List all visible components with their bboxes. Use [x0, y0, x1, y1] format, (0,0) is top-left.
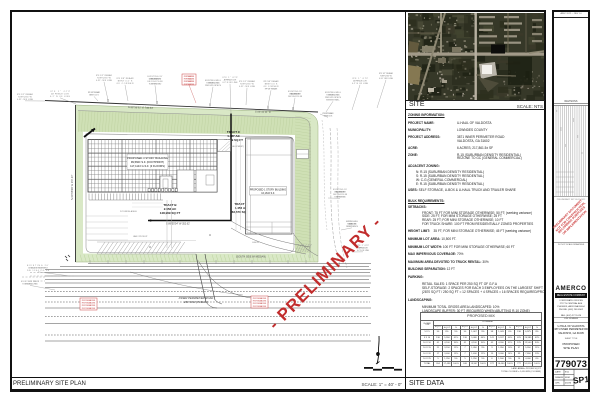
svg-text:TO BE REMOVED: TO BE REMOVED [149, 83, 162, 85]
svg-text:99,560± S.F. (FOOTPRINT): 99,560± S.F. (FOOTPRINT) [131, 160, 164, 164]
svg-text:0.2' N OF LINE: 0.2' N OF LINE [223, 82, 239, 84]
svg-text:U-BOX: U-BOX [252, 242, 259, 244]
svg-text:PROPOSED 40' ACCESS: PROPOSED 40' ACCESS [184, 78, 195, 81]
svg-text:0.31' OFF LINE: 0.31' OFF LINE [379, 78, 394, 80]
svg-text:0.2' N OF LINE: 0.2' N OF LINE [50, 96, 71, 98]
svg-text:BENT 0.5' S: BENT 0.5' S [89, 94, 99, 96]
svg-text:200' R/W (PUBLIC): 200' R/W (PUBLIC) [183, 300, 208, 304]
svg-text:0.31' OFF LINE: 0.31' OFF LINE [239, 86, 256, 88]
svg-text:OF CORNER: OF CORNER [117, 83, 134, 85]
svg-text:PROPOSED 40' ACCESS: PROPOSED 40' ACCESS [82, 307, 96, 310]
svg-text:PROPOSED 3 STORY BUILDING: PROPOSED 3 STORY BUILDING [127, 156, 168, 160]
svg-text:EXISTING WELL: EXISTING WELL [326, 99, 340, 101]
svg-text:148,969 SQ FT: 148,969 SQ FT [160, 211, 181, 215]
svg-text:DB 1204 PG 88: DB 1204 PG 88 [27, 270, 50, 272]
svg-text:BENT 0.5' S: BENT 0.5' S [324, 115, 333, 117]
svg-text:PROPOSED 40' ACCESS: PROPOSED 40' ACCESS [184, 75, 195, 78]
svg-text:PROPOSED 40' ACCESS: PROPOSED 40' ACCESS [82, 299, 96, 302]
svg-text:PROPOSED 40' ACCESS: PROPOSED 40' ACCESS [184, 80, 195, 83]
svg-text:PROPOSED 40' ACCESS: PROPOSED 40' ACCESS [253, 300, 267, 303]
svg-text:N 00°06'39" E 157.07': N 00°06'39" E 157.07' [70, 174, 74, 200]
svg-text:S 89°55'54" W 352.62': S 89°55'54" W 352.62' [166, 223, 190, 226]
svg-text:0.31' OFF LINE: 0.31' OFF LINE [17, 99, 34, 101]
svg-text:PROPOSED 40' ACCESS: PROPOSED 40' ACCESS [253, 302, 267, 305]
svg-text:IPF 5/8" REBAR: IPF 5/8" REBAR [265, 87, 278, 90]
svg-text:46196: 46196 [565, 383, 572, 385]
svg-text:PROPOSED 40' ACCESS: PROPOSED 40' ACCESS [253, 305, 267, 308]
svg-text:PROPOSED 40' ACCESS: PROPOSED 40' ACCESS [82, 304, 96, 307]
svg-text:DB 1204 PG 88: DB 1204 PG 88 [288, 96, 303, 98]
svg-text:16,164± S.F.: 16,164± S.F. [261, 192, 275, 195]
svg-text:0.2' N OF LINE: 0.2' N OF LINE [352, 83, 369, 85]
svg-text:(SOUTH SIDE W/ MEDIAN): (SOUTH SIDE W/ MEDIAN) [236, 256, 266, 259]
svg-text:TO BE ABANDONED: TO BE ABANDONED [22, 282, 38, 285]
svg-text:0.31' OFF LINE: 0.31' OFF LINE [96, 80, 113, 82]
svg-text:PER EPD SPECS: PER EPD SPECS [205, 85, 222, 87]
svg-text:MJM: MJM [565, 377, 570, 379]
svg-text:24' DRIVE AISLE: 24' DRIVE AISLE [120, 210, 137, 213]
svg-text:CHK: CHK [555, 383, 560, 385]
svg-text:S 88°41'11" E: S 88°41'11" E [255, 109, 271, 114]
svg-text:SP1: SP1 [572, 374, 588, 386]
svg-text:DATE: DATE [555, 371, 561, 374]
svg-text:8/11: 8/11 [565, 372, 570, 374]
svg-text:117,114± G.S.F. (3 FLOORS): 117,114± G.S.F. (3 FLOORS) [130, 164, 165, 168]
svg-text:VAN / PICKUP: VAN / PICKUP [133, 235, 148, 238]
svg-text:PROPOSED 40' ACCESS: PROPOSED 40' ACCESS [253, 297, 267, 300]
svg-text:S 89°59'52" E 746.64': S 89°59'52" E 746.64' [128, 105, 154, 110]
svg-text:DRAWN: DRAWN [555, 376, 564, 379]
svg-text:PROPOSED 40' ACCESS: PROPOSED 40' ACCESS [82, 302, 96, 305]
